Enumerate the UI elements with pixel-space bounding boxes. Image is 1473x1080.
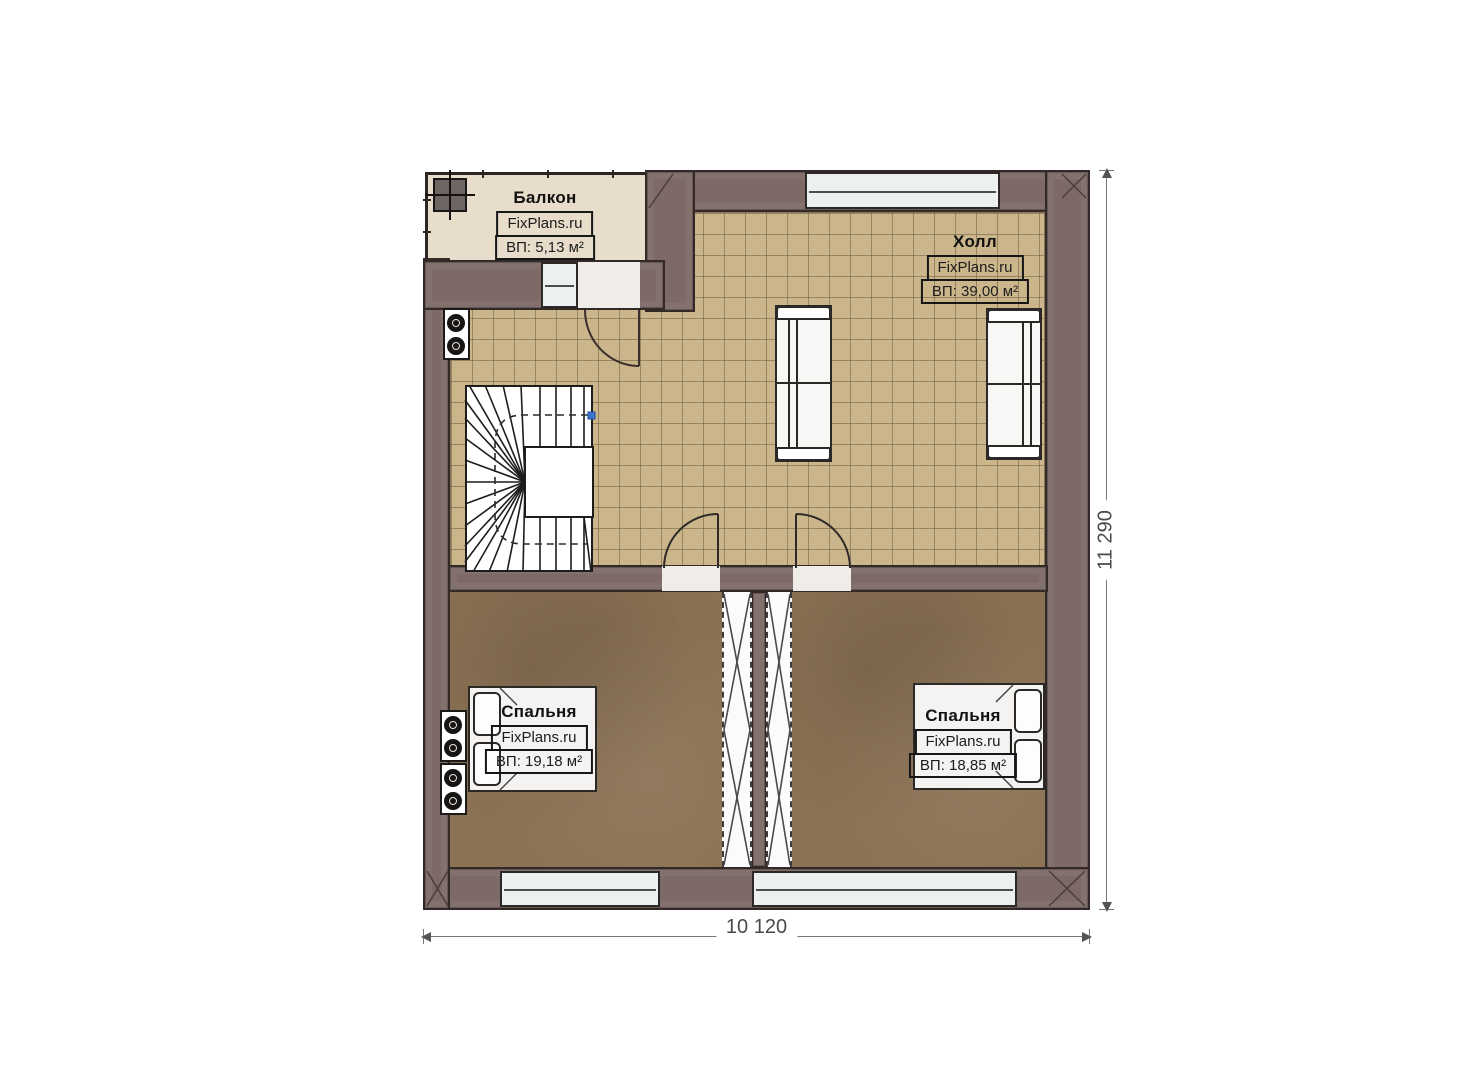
area-label: ВП: 18,85 м² [909,753,1017,779]
brand-label: FixPlans.ru [914,729,1011,755]
wardrobe-left [722,592,752,867]
sofa-left [775,305,832,462]
balcony-door-opening [578,262,640,308]
bedroom-right-door-opening [793,566,851,591]
area-label: ВП: 19,18 м² [485,749,593,775]
brand-label: FixPlans.ru [926,255,1023,281]
room-label-balcony: Балкон FixPlans.ru ВП: 5,13 м² [495,188,595,260]
area-label: ВП: 5,13 м² [495,235,595,261]
dimension-bottom-label: 10 120 [716,916,797,939]
window-bottom-right [752,871,1017,907]
room-name: Холл [953,232,997,252]
floor-plan-canvas: Балкон FixPlans.ru ВП: 5,13 м² Холл FixP… [0,0,1473,1080]
room-name: Балкон [513,188,576,208]
dimension-right-label: 11 290 [1095,500,1118,580]
dimension-bottom: 10 120 [423,916,1090,956]
arrow-up-icon [1102,168,1112,178]
room-label-hall: Холл FixPlans.ru ВП: 39,00 м² [921,232,1029,304]
wall-bedroom-divider [752,592,766,867]
arrow-down-icon [1102,902,1112,912]
staircase [465,385,593,572]
pillow [1014,689,1042,733]
window-balcony [541,262,578,308]
window-top [805,172,1000,209]
vent-shaft-icon [440,763,467,815]
dimension-right: 11 290 [1086,170,1126,910]
chimney-icon [433,178,467,212]
vent-shaft-icon [443,308,470,360]
room-label-bedroom-right: Спальня FixPlans.ru ВП: 18,85 м² [909,706,1017,778]
bedroom-left-door-opening [662,566,720,591]
room-label-bedroom-left: Спальня FixPlans.ru ВП: 19,18 м² [485,702,593,774]
pillow [1014,739,1042,783]
floor-plan: Балкон FixPlans.ru ВП: 5,13 м² Холл FixP… [423,170,1090,910]
brand-label: FixPlans.ru [496,211,593,237]
brand-label: FixPlans.ru [490,725,587,751]
area-label: ВП: 39,00 м² [921,279,1029,305]
window-bottom-left [500,871,660,907]
vent-shaft-icon [440,710,467,762]
wall-right [1045,170,1090,910]
wardrobe-right [766,592,792,867]
sofa-right [986,308,1042,460]
arrow-left-icon [421,932,431,942]
room-name: Спальня [501,702,577,722]
arrow-right-icon [1082,932,1092,942]
room-name: Спальня [925,706,1001,726]
